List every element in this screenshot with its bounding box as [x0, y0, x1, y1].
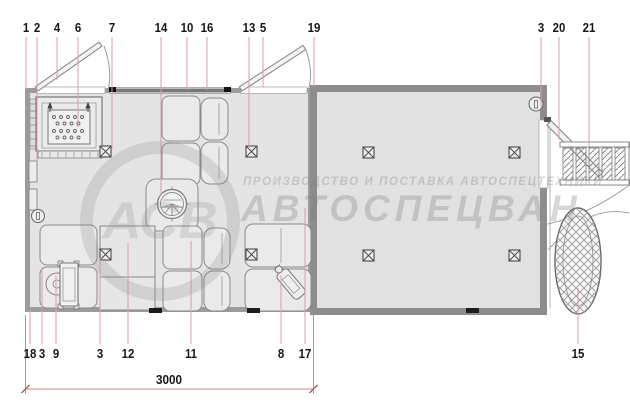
- entry-door-left: [35, 42, 110, 91]
- sofa-bottom-middle: [163, 226, 230, 311]
- callout-11: 11: [185, 347, 197, 360]
- callout-17: 17: [299, 347, 312, 360]
- callout-5: 5: [260, 21, 266, 34]
- access-ladder: [560, 142, 630, 186]
- callout-8: 8: [278, 347, 284, 360]
- callout-2: 2: [34, 21, 40, 34]
- callout-13: 13: [243, 21, 256, 34]
- callout-10: 10: [181, 21, 194, 34]
- dimension-value: 3000: [156, 372, 182, 387]
- callout-3c: 3: [97, 347, 103, 360]
- callout-16: 16: [201, 21, 214, 34]
- entry-door-right: [239, 45, 310, 91]
- sofa-top: [162, 96, 228, 185]
- callout-20: 20: [553, 21, 566, 34]
- right-module-walls: [310, 85, 548, 315]
- stove-unit: [30, 97, 102, 158]
- callout-19: 19: [308, 21, 321, 34]
- callout-15: 15: [572, 347, 585, 360]
- callout-1: 1: [23, 21, 29, 34]
- callout-6: 6: [75, 21, 81, 34]
- callout-12: 12: [122, 347, 135, 360]
- callout-9: 9: [53, 347, 59, 360]
- dining-table: [146, 179, 198, 231]
- callout-18: 18: [24, 347, 37, 360]
- callout-3b: 3: [39, 347, 45, 360]
- callout-21: 21: [583, 21, 596, 34]
- window-top: [109, 87, 231, 94]
- callout-4: 4: [54, 21, 60, 34]
- callout-7: 7: [109, 21, 115, 34]
- lamp-symbol-left: [32, 210, 45, 223]
- spare-wheel: [548, 208, 629, 314]
- callout-3a: 3: [538, 21, 544, 34]
- callout-14: 14: [155, 21, 168, 34]
- van-floor-plan: АСВ ПРОИЗВОДСТВО И ПОСТАВКА АВТОСПЕЦТЕХН…: [0, 0, 630, 420]
- floor-plan-drawing: [0, 0, 630, 420]
